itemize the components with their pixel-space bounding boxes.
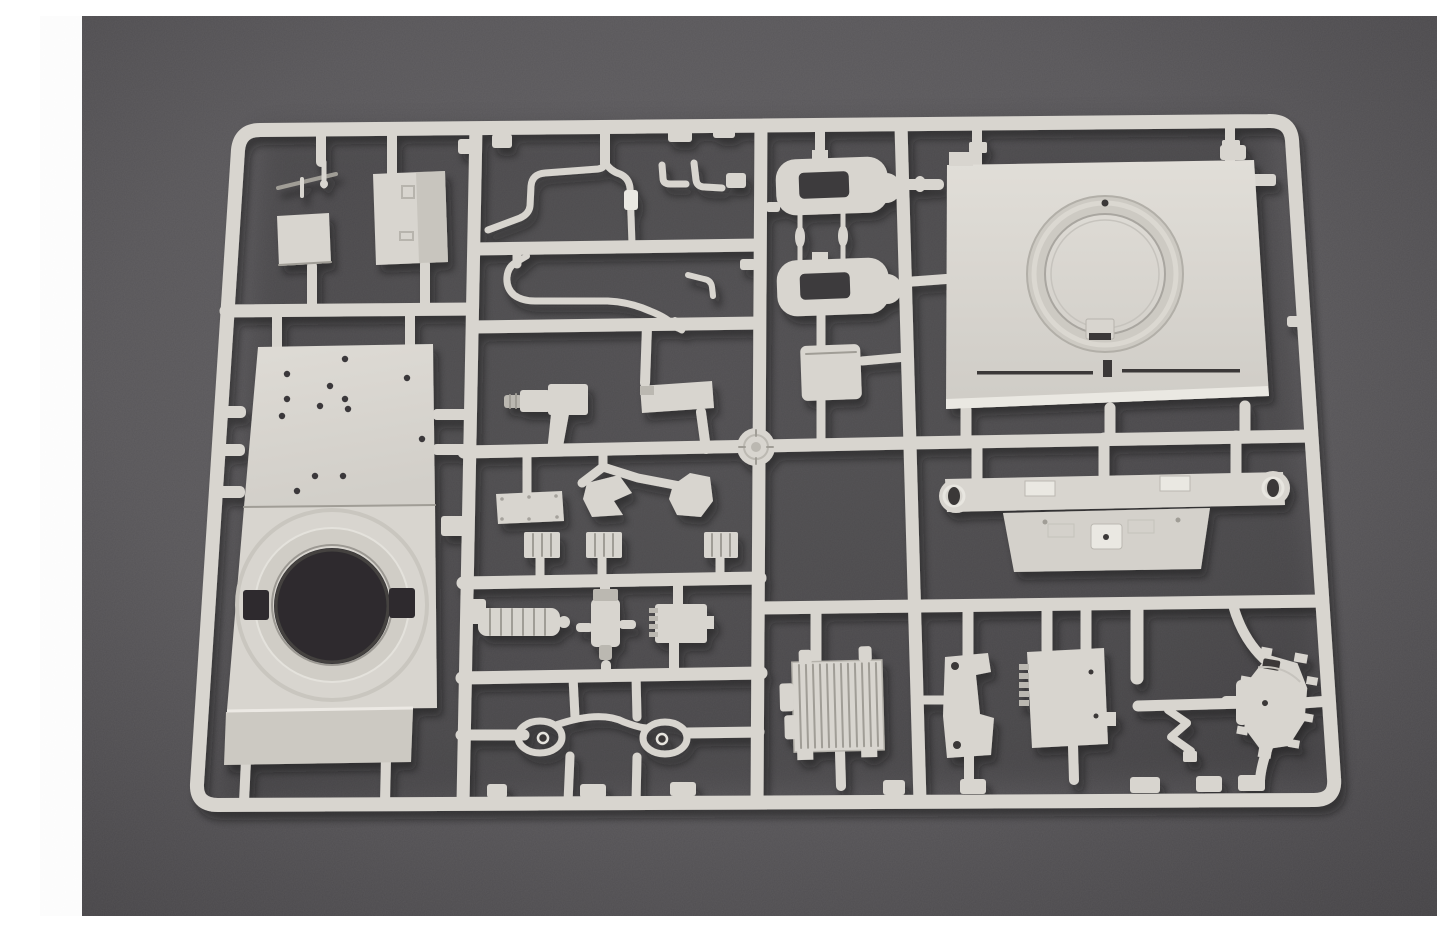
left-margin-bar: [40, 16, 82, 916]
part-equipment-bar: [640, 381, 714, 413]
part-ribbed-edge-equipment-box: [1019, 648, 1116, 748]
part-hull-roof-plate: [224, 344, 437, 765]
part-small-equipment-box: [800, 344, 862, 401]
sprue-gate-disc: [737, 428, 775, 466]
part-small-square-panel: [277, 213, 331, 266]
part-riveted-access-plate: [496, 491, 564, 524]
part-comb-edged-small-box: [649, 604, 714, 643]
part-radiator-grille-box: [778, 646, 884, 761]
part-turret-roof-plate: [946, 152, 1269, 409]
part-mounting-plate-with-boss: [1003, 508, 1210, 572]
sprue-photo-canvas: [40, 16, 1440, 916]
part-rectangular-hatch-box: [373, 171, 448, 265]
sprue-photo: Light gray injection-molded plastic mode…: [40, 16, 1440, 916]
